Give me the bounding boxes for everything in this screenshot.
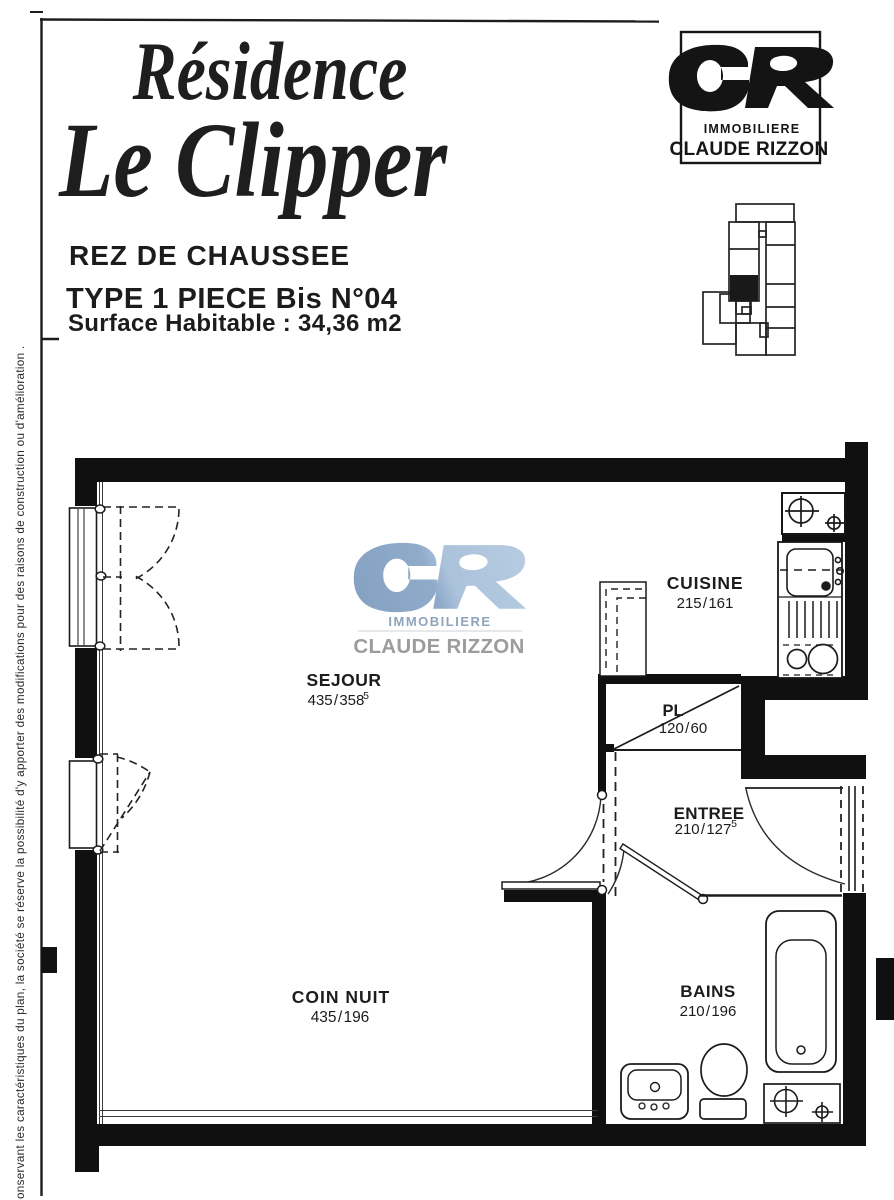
svg-text:onservant les caractéristiques: onservant les caractéristiques du plan, … [14, 346, 27, 1199]
svg-text:435 / 358: 435 / 358 [308, 692, 365, 709]
svg-text:215 / 161: 215 / 161 [677, 595, 734, 612]
svg-text:BAINS: BAINS [680, 982, 735, 1001]
svg-text:210 / 196: 210 / 196 [680, 1003, 737, 1020]
svg-text:Le Clipper: Le Clipper [58, 101, 448, 219]
svg-text:PL: PL [662, 702, 683, 720]
svg-text:COIN NUIT: COIN NUIT [292, 987, 390, 1007]
svg-text:5: 5 [731, 818, 737, 830]
svg-text:435 / 196: 435 / 196 [311, 1009, 370, 1026]
svg-text:CLAUDE RIZZON: CLAUDE RIZZON [353, 635, 524, 658]
svg-text:CLAUDE RIZZON: CLAUDE RIZZON [669, 139, 828, 160]
svg-text:120 / 60: 120 / 60 [659, 720, 707, 737]
svg-text:Surface Habitable : 34,36 m2: Surface Habitable : 34,36 m2 [68, 310, 402, 337]
svg-text:REZ DE CHAUSSEE: REZ DE CHAUSSEE [69, 240, 350, 271]
svg-text:IMMOBILIERE: IMMOBILIERE [388, 614, 491, 629]
svg-text:SEJOUR: SEJOUR [307, 670, 382, 690]
svg-text:5: 5 [363, 690, 369, 702]
svg-text:CUISINE: CUISINE [667, 573, 744, 593]
svg-text:IMMOBILIERE: IMMOBILIERE [704, 122, 801, 136]
svg-text:210 / 127: 210 / 127 [675, 821, 732, 838]
